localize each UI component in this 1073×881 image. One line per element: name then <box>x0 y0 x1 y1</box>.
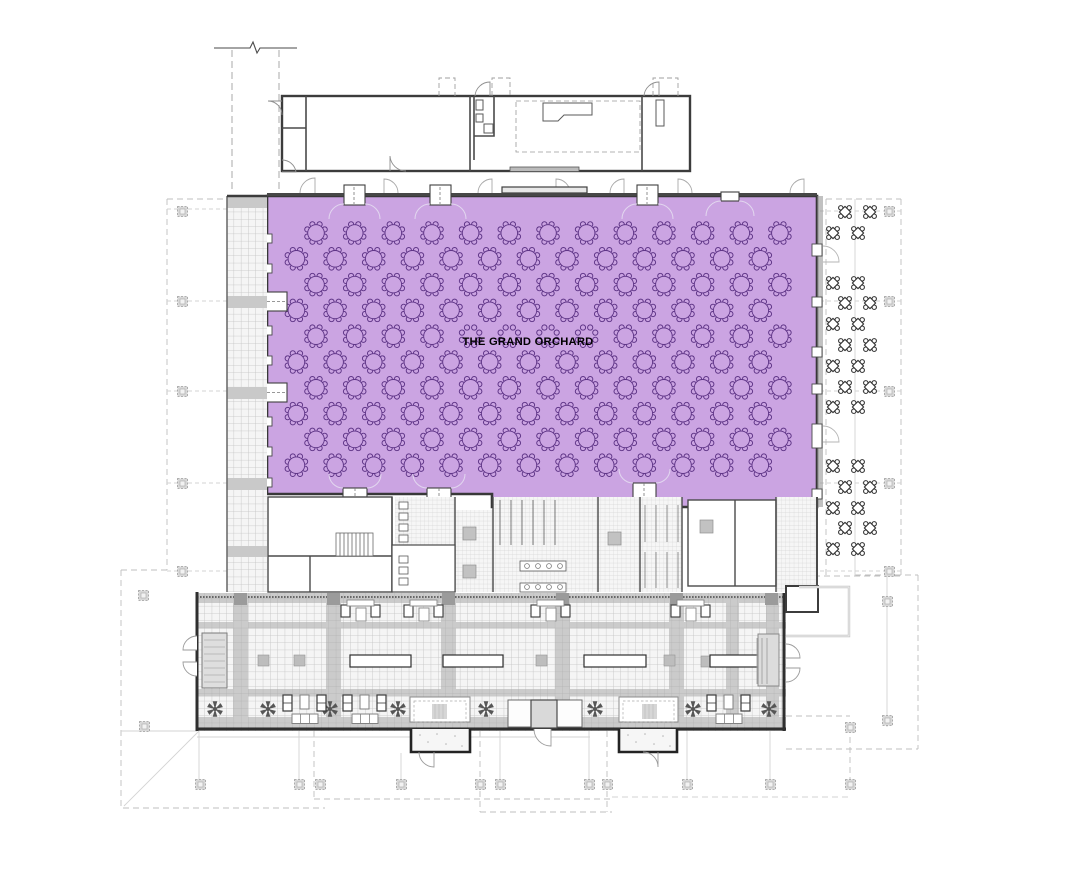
svg-text:THE GRAND ORCHARD: THE GRAND ORCHARD <box>462 336 593 348</box>
